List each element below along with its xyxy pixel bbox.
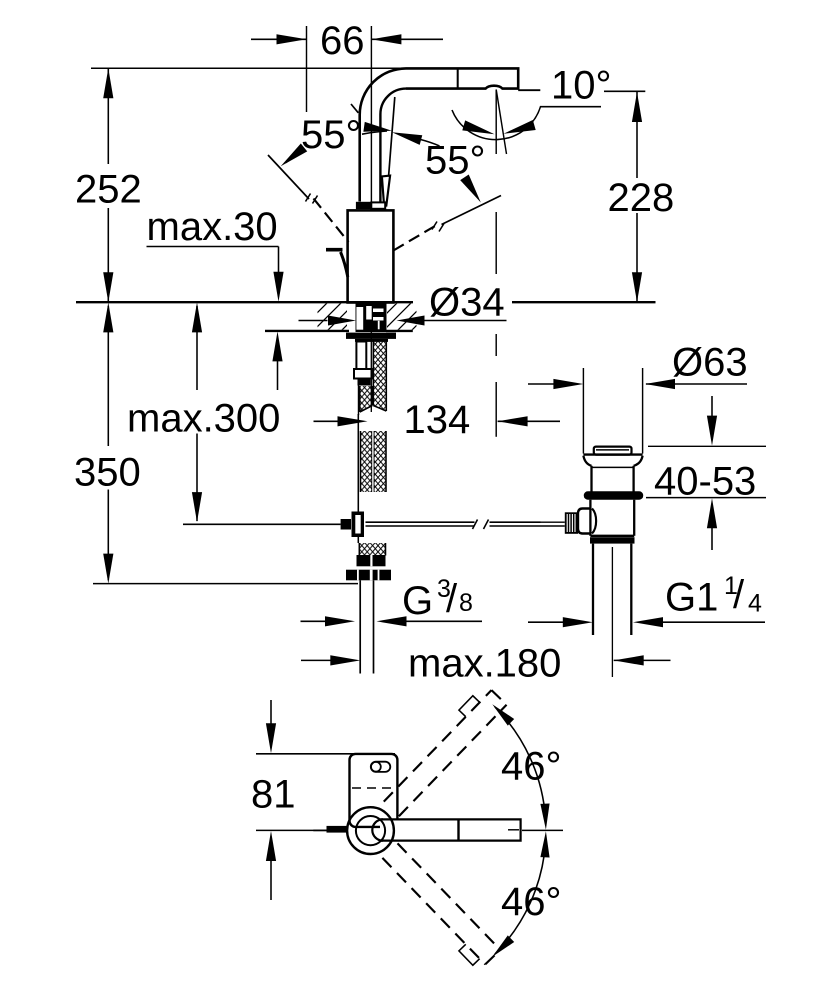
svg-text:55°: 55° bbox=[425, 139, 486, 183]
svg-text:max.180: max.180 bbox=[408, 642, 561, 686]
svg-text:10°: 10° bbox=[551, 63, 612, 107]
svg-text:46°: 46° bbox=[501, 745, 562, 789]
svg-text:252: 252 bbox=[75, 168, 142, 212]
svg-text:max.30: max.30 bbox=[147, 205, 278, 249]
svg-text:46°: 46° bbox=[501, 880, 562, 924]
svg-text:/: / bbox=[733, 573, 745, 617]
svg-text:G1: G1 bbox=[665, 576, 718, 620]
svg-text:max.300: max.300 bbox=[127, 397, 280, 441]
svg-text:81: 81 bbox=[251, 773, 296, 817]
svg-text:350: 350 bbox=[74, 451, 141, 495]
svg-text:4: 4 bbox=[748, 590, 762, 618]
svg-text:228: 228 bbox=[608, 176, 675, 220]
svg-text:/: / bbox=[446, 577, 458, 621]
svg-text:55°: 55° bbox=[301, 113, 362, 157]
svg-text:40-53: 40-53 bbox=[654, 460, 756, 504]
svg-text:134: 134 bbox=[404, 398, 471, 442]
svg-text:Ø34: Ø34 bbox=[429, 281, 505, 325]
svg-text:G: G bbox=[402, 579, 433, 623]
svg-text:8: 8 bbox=[459, 589, 473, 617]
svg-text:Ø63: Ø63 bbox=[672, 341, 748, 385]
svg-text:66: 66 bbox=[320, 19, 365, 63]
